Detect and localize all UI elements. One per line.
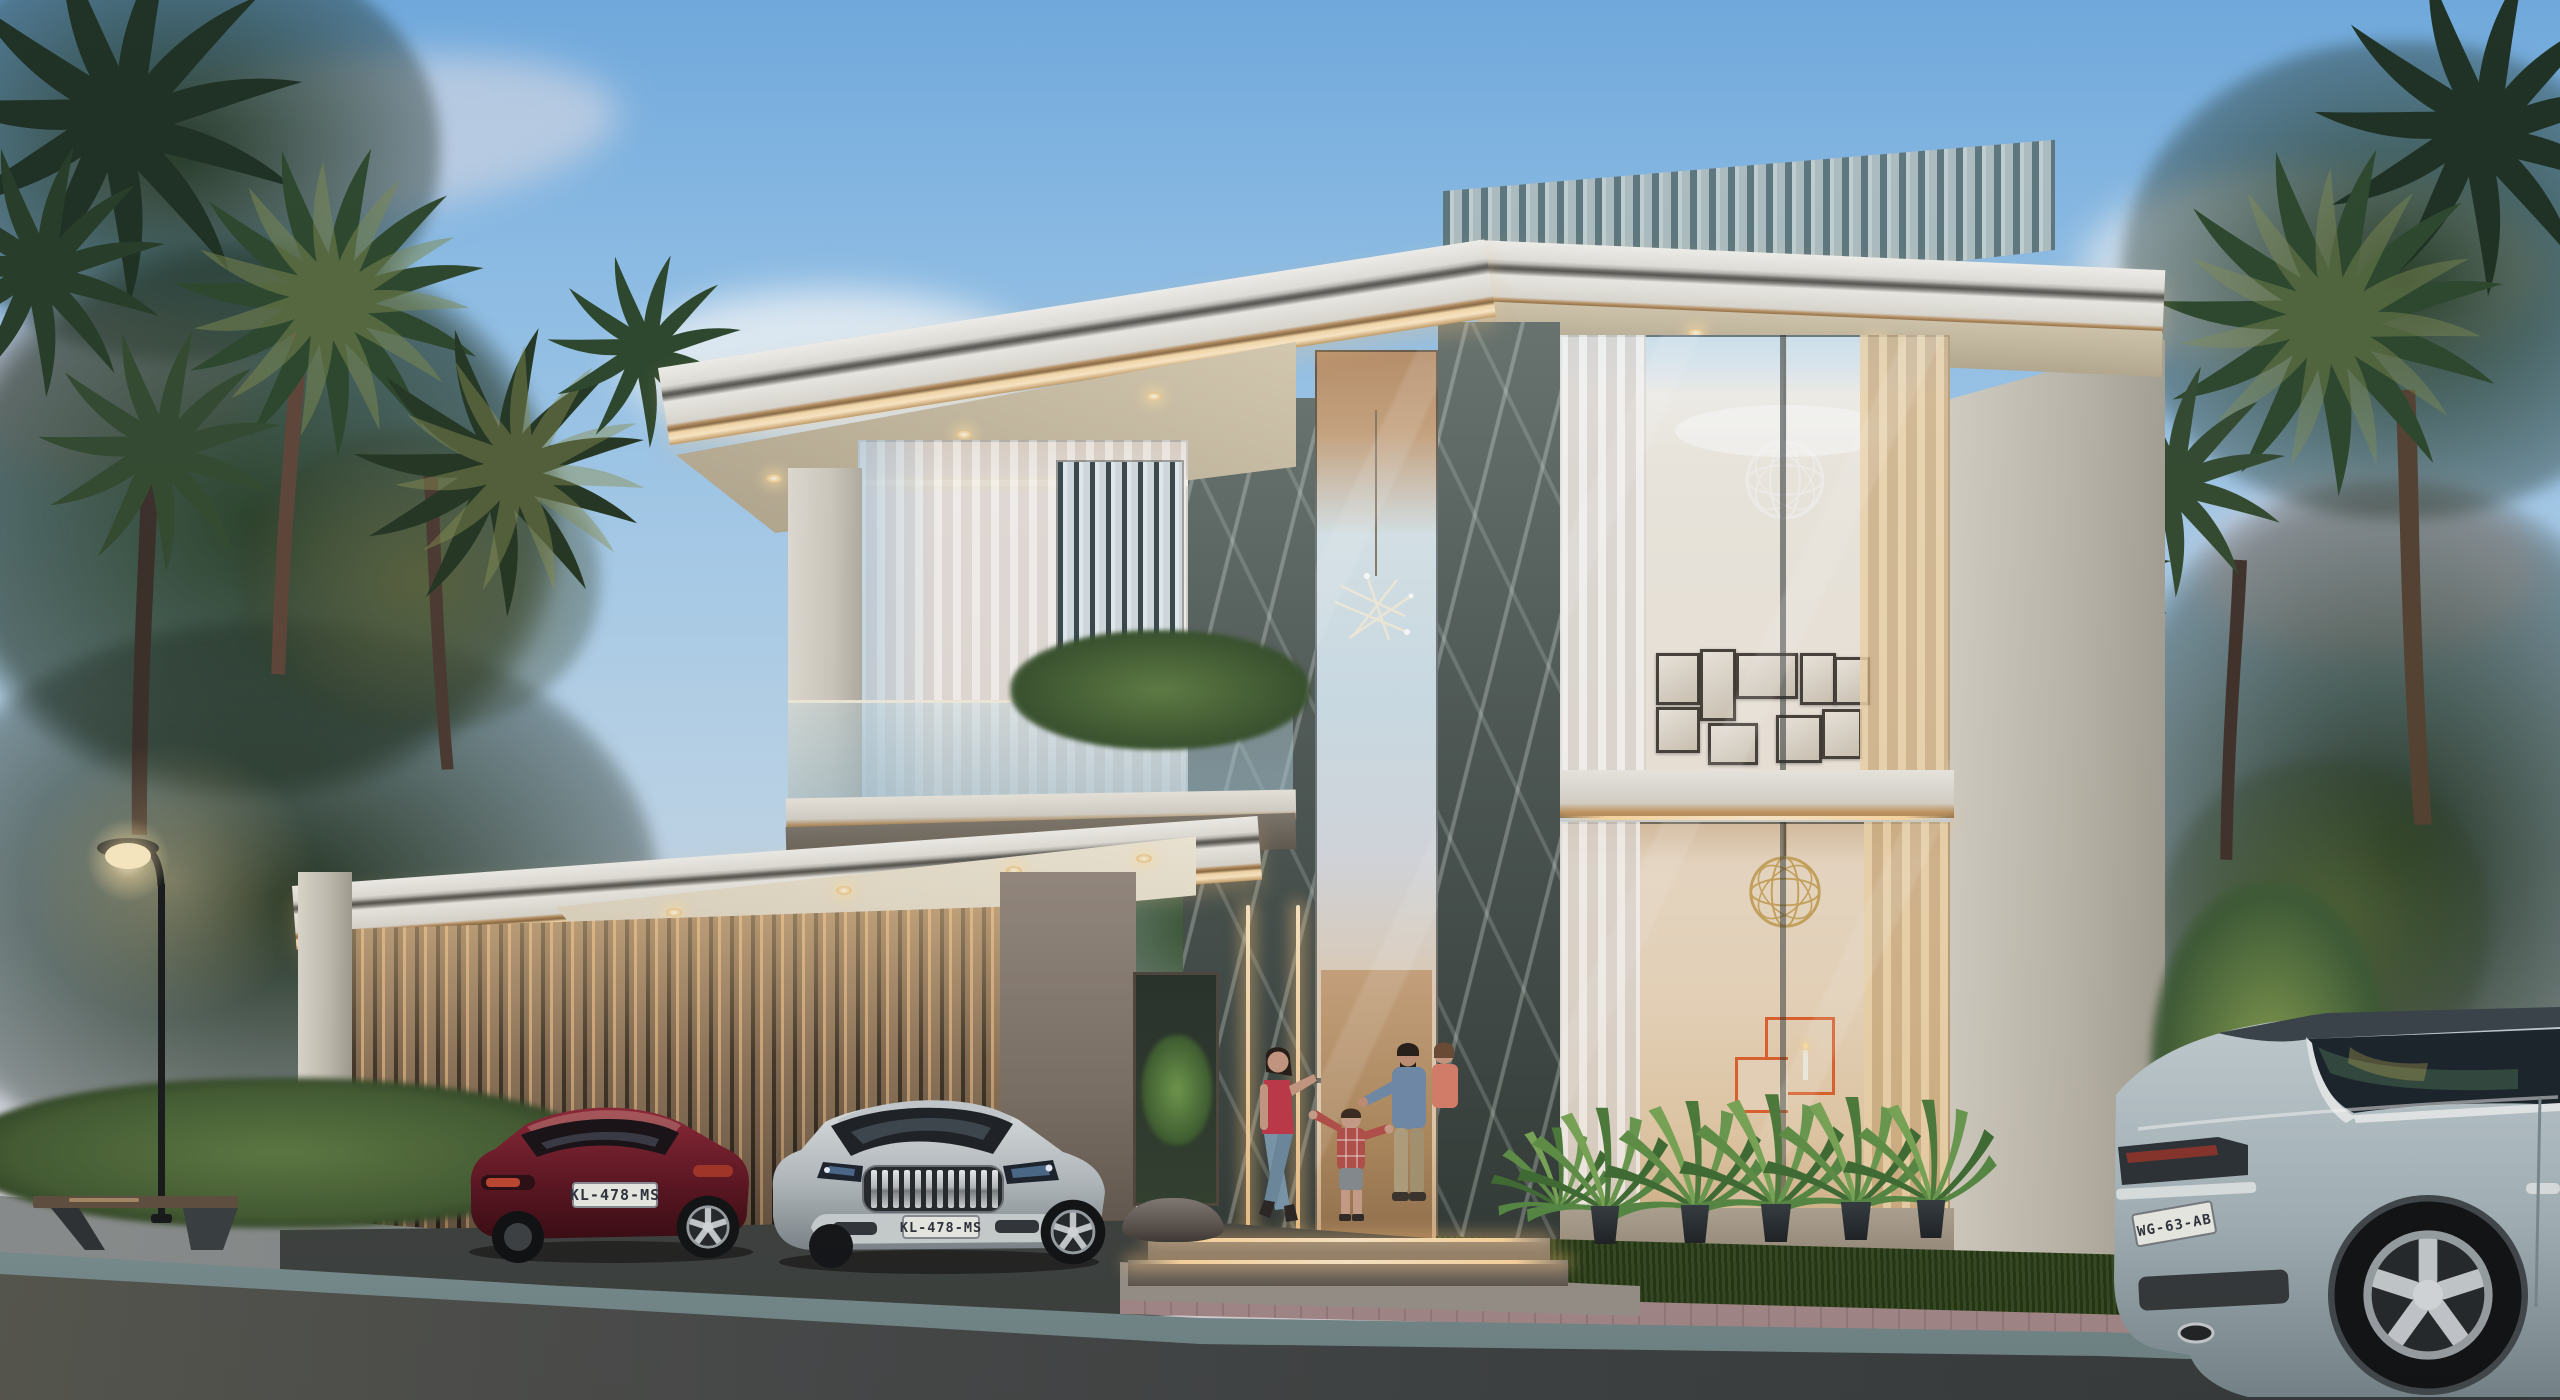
villa-dusk-rendering: KL-478-MS KL-478-MS [0,0,2560,1400]
license-plate-text: KL-478-MS [900,1220,982,1236]
figure-child [1309,1109,1394,1222]
wheel [677,1196,740,1259]
bench [33,1196,253,1266]
license-plate-text: KL-478-MS [570,1186,660,1204]
figure-woman-walking [1259,1047,1317,1222]
wheel [1041,1200,1106,1265]
figure-man [1358,1043,1426,1201]
wheel [2335,1202,2522,1389]
family-figures [1244,1030,1544,1290]
wheel [809,1224,853,1268]
exhaust [2179,1324,2213,1342]
figure-woman-behind [1432,1043,1458,1109]
silver-sedan: KL-478-MS [767,1070,1112,1275]
door-handle [2526,1183,2560,1194]
grey-suv: WG-63-AB [2098,977,2560,1400]
street-lamp [60,790,380,1350]
tail-light-right [693,1165,733,1177]
red-hatchback: KL-478-MS [461,1091,756,1263]
